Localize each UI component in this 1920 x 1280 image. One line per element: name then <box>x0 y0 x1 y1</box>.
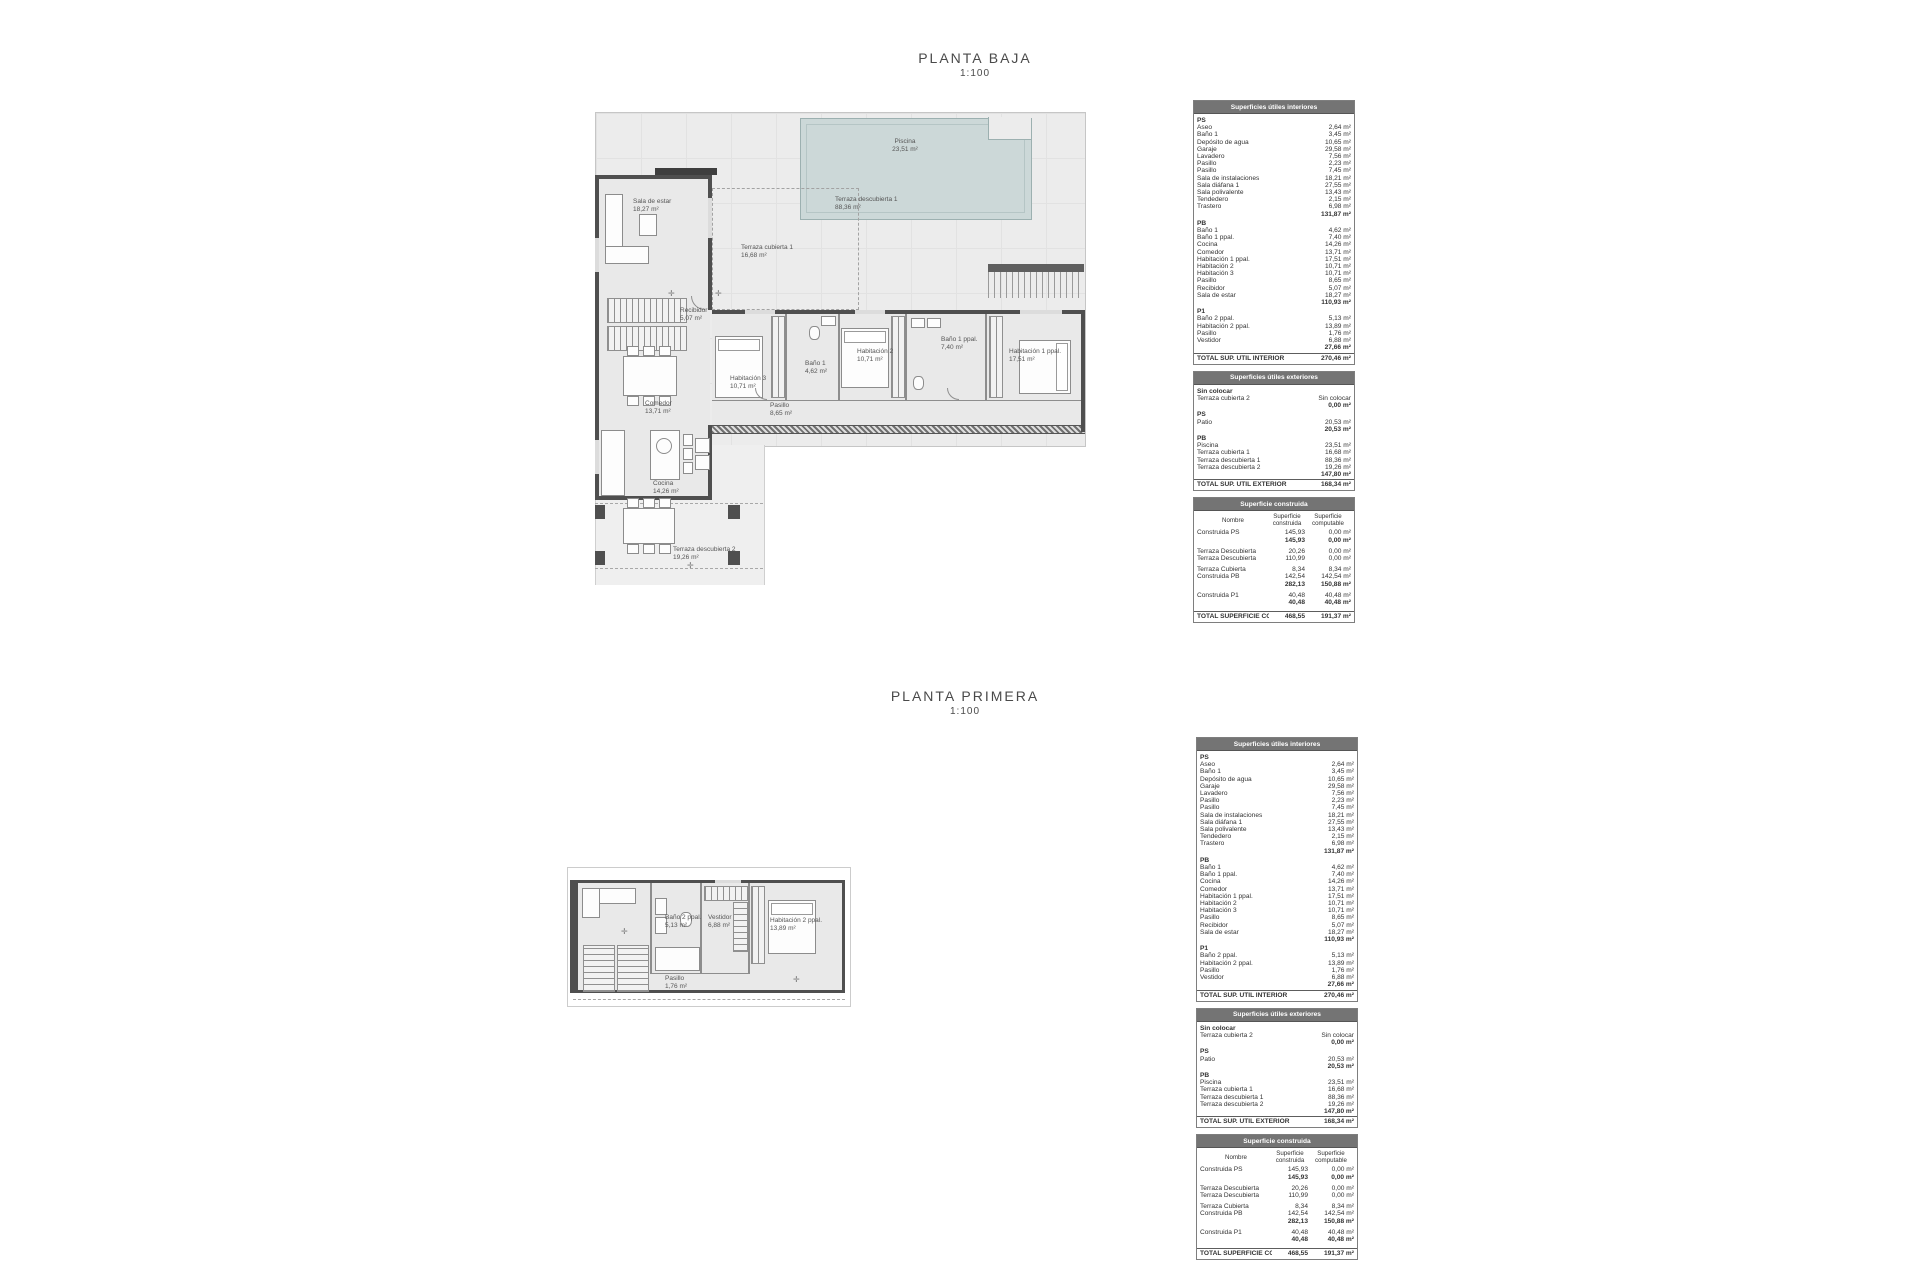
table-row: Construida P140,4840,48 m² <box>1194 592 1354 599</box>
row-value: 7,56 m² <box>1310 790 1354 797</box>
stairs <box>617 945 649 992</box>
row-value <box>1307 220 1351 227</box>
table-row: Construida P140,4840,48 m² <box>1197 1229 1357 1236</box>
room-area: 13,89 m² <box>770 925 796 932</box>
overhang-dashed-line <box>573 999 845 1000</box>
shower <box>655 947 700 971</box>
table-row: NombreSuperficie construidaSuperficie co… <box>1194 513 1354 527</box>
level-marker-icon: ✛ <box>793 976 800 984</box>
table-row: Sala de estar18,27 m² <box>1197 929 1357 936</box>
row-label: Terraza descubierta 2 <box>1200 1101 1310 1108</box>
row-value: 20,26 <box>1272 1185 1308 1192</box>
area-tables-planta-baja: Superficies útiles interioresPSAseo2,64 … <box>1193 100 1355 629</box>
table-row: Cocina14,26 m² <box>1194 241 1354 248</box>
table-row: NombreSuperficie construidaSuperficie co… <box>1197 1150 1357 1164</box>
room-label: Baño 14,62 m² <box>805 360 827 375</box>
row-value: 131,87 m² <box>1310 848 1354 855</box>
row-value: 18,27 m² <box>1307 292 1351 299</box>
row-label: Piscina <box>1200 1079 1310 1086</box>
wardrobe <box>771 316 785 398</box>
window <box>1020 310 1062 314</box>
row-value: 20,53 m² <box>1307 419 1351 426</box>
table-row: Terraza Descubierta110,990,00 m² <box>1194 555 1354 562</box>
table-row: 110,93 m² <box>1197 936 1357 943</box>
row-value: 40,48 <box>1272 1229 1308 1236</box>
table-row: 40,4840,48 m² <box>1197 1236 1357 1243</box>
level-marker-icon: ✛ <box>668 290 675 298</box>
partition <box>785 314 787 400</box>
table-row: Sala polivalente13,43 m² <box>1194 189 1354 196</box>
table-row: 27,66 m² <box>1197 981 1357 988</box>
row-label <box>1197 211 1307 218</box>
row-label: Trastero <box>1197 203 1307 210</box>
floor-plan-planta-primera: ✛ ✛ Baño 2 ppal.5,13 m² Vestidor6,88 m² … <box>565 862 865 1012</box>
row-value: 468,55 <box>1269 613 1305 620</box>
row-label: PS <box>1197 117 1307 124</box>
row-label: Trastero <box>1200 840 1310 847</box>
table-row: Vestidor6,88 m² <box>1194 337 1354 344</box>
row-label: Terraza Descubierta <box>1197 555 1269 562</box>
row-label <box>1197 426 1307 433</box>
table-row: 0,00 m² <box>1197 1039 1357 1046</box>
row-value: 0,00 m² <box>1308 1192 1354 1199</box>
table-body: PSAseo2,64 m²Baño 13,45 m²Depósito de ag… <box>1194 114 1354 364</box>
wall <box>655 168 717 175</box>
table-row: Construida PB142,54142,54 m² <box>1197 1210 1357 1217</box>
wall <box>573 880 845 883</box>
row-label: Sin colocar <box>1200 1025 1310 1032</box>
row-value <box>1307 308 1351 315</box>
room-area: 13,71 m² <box>645 408 671 415</box>
room-label: Pasillo1,76 m² <box>665 975 687 990</box>
row-label: Habitación 1 ppal. <box>1197 256 1307 263</box>
room-label: Habitación 210,71 m² <box>857 348 893 363</box>
room-area: 8,65 m² <box>770 410 792 417</box>
stool <box>683 434 693 446</box>
row-value: 2,23 m² <box>1310 797 1354 804</box>
row-value: 19,26 m² <box>1307 464 1351 471</box>
room-name: Habitación 1 ppal. <box>1009 348 1061 355</box>
table-row: Baño 2 ppal.5,13 m² <box>1197 952 1357 959</box>
row-label: Pasillo <box>1197 330 1307 337</box>
table-header: Superficie construida <box>1194 498 1354 511</box>
row-value: 7,40 m² <box>1307 234 1351 241</box>
row-value: 7,45 m² <box>1310 804 1354 811</box>
row-value: 0,00 m² <box>1308 1166 1354 1173</box>
room-area: 7,40 m² <box>941 344 963 351</box>
chair <box>627 544 639 554</box>
floor-plan-planta-baja: ✛ ✛ ✛ Piscina23,51 m² Terraza descubiert… <box>595 88 1087 588</box>
pergola-slats <box>988 272 1084 298</box>
row-value: Sin colocar <box>1310 1032 1354 1039</box>
row-label: Baño 1 <box>1197 227 1307 234</box>
window <box>745 310 775 314</box>
wall-hatched <box>712 425 1085 434</box>
table-row: Garaje29,58 m² <box>1194 146 1354 153</box>
room-area: 88,36 m² <box>835 204 861 211</box>
row-value: 17,51 m² <box>1310 893 1354 900</box>
row-value: 18,21 m² <box>1307 175 1351 182</box>
row-label: Sala polivalente <box>1197 189 1307 196</box>
table-row: 110,93 m² <box>1194 299 1354 306</box>
row-value: Superficie construida <box>1272 1150 1308 1164</box>
table-row: Habitación 2 ppal.13,89 m² <box>1194 323 1354 330</box>
row-label <box>1200 1218 1272 1225</box>
table-row: P1 <box>1194 308 1354 315</box>
row-value: 8,34 <box>1272 1203 1308 1210</box>
room-area: 5,07 m² <box>680 315 702 322</box>
row-value: 13,43 m² <box>1310 826 1354 833</box>
row-value <box>1307 411 1351 418</box>
row-label: Nombre <box>1197 517 1269 524</box>
room-label: Terraza cubierta 116,68 m² <box>741 244 793 259</box>
row-label: Construida PB <box>1200 1210 1272 1217</box>
room-label: Habitación 2 ppal.13,89 m² <box>770 917 822 932</box>
row-value: 142,54 m² <box>1308 1210 1354 1217</box>
room-area: 10,71 m² <box>857 356 883 363</box>
sofa <box>605 246 649 264</box>
row-value: 0,00 m² <box>1307 402 1351 409</box>
scale-label: 1:100 <box>845 68 1105 79</box>
table-row: Cocina14,26 m² <box>1197 878 1357 885</box>
table-gap <box>1197 1243 1357 1247</box>
table-row: Sala de instalaciones18,21 m² <box>1197 812 1357 819</box>
table-row: Terraza cubierta 116,68 m² <box>1197 1086 1357 1093</box>
table-row: P1 <box>1197 945 1357 952</box>
table-row: PS <box>1197 754 1357 761</box>
page-title: PLANTA PRIMERA <box>835 688 1095 704</box>
row-value: 20,26 <box>1269 548 1305 555</box>
row-value: 147,80 m² <box>1310 1108 1354 1115</box>
table-row: Baño 13,45 m² <box>1194 131 1354 138</box>
room-label: Sala de estar18,27 m² <box>633 198 671 213</box>
row-label: Aseo <box>1197 124 1307 131</box>
table-header: Superficies útiles interiores <box>1194 101 1354 114</box>
row-label: Terraza Descubierta <box>1200 1185 1272 1192</box>
row-value: 6,88 m² <box>1307 337 1351 344</box>
row-value: 2,23 m² <box>1307 160 1351 167</box>
row-value: 131,87 m² <box>1307 211 1351 218</box>
row-value: 2,15 m² <box>1307 196 1351 203</box>
row-label: Terraza Cubierta <box>1197 566 1269 573</box>
row-value: 1,76 m² <box>1307 330 1351 337</box>
row-value <box>1310 945 1354 952</box>
table-row: Pasillo2,23 m² <box>1194 160 1354 167</box>
table-row: Trastero6,98 m² <box>1197 840 1357 847</box>
row-label: Lavadero <box>1200 790 1310 797</box>
table-row: Habitación 210,71 m² <box>1197 900 1357 907</box>
row-value: 88,36 m² <box>1310 1094 1354 1101</box>
stool <box>683 462 693 474</box>
chair <box>643 346 655 356</box>
room-label: Vestidor6,88 m² <box>708 914 732 929</box>
row-value: 150,88 m² <box>1305 581 1351 588</box>
row-value: 147,80 m² <box>1307 471 1351 478</box>
room-label: Baño 1 ppal.7,40 m² <box>941 336 978 351</box>
row-value: Superficie computable <box>1305 513 1351 527</box>
row-value: 17,51 m² <box>1307 256 1351 263</box>
partition <box>650 973 750 974</box>
row-label: PB <box>1197 435 1307 442</box>
row-label: Sala de instalaciones <box>1197 175 1307 182</box>
room-name: Terraza descubierta 1 <box>835 196 898 203</box>
row-value: 0,00 m² <box>1308 1185 1354 1192</box>
table-row: Habitación 1 ppal.17,51 m² <box>1197 893 1357 900</box>
row-value: 2,15 m² <box>1310 833 1354 840</box>
row-value: 145,93 <box>1272 1166 1308 1173</box>
pool-step <box>988 117 1031 140</box>
row-value: 0,00 m² <box>1305 537 1351 544</box>
level-marker-icon: ✛ <box>621 928 628 936</box>
table-row: PB <box>1194 220 1354 227</box>
row-label: Cocina <box>1197 241 1307 248</box>
row-value: 14,26 m² <box>1307 241 1351 248</box>
row-value: 2,64 m² <box>1310 761 1354 768</box>
table-row: 147,80 m² <box>1197 1108 1357 1115</box>
row-label: Sala de estar <box>1197 292 1307 299</box>
room-name: Baño 1 ppal. <box>941 336 978 343</box>
room-name: Recibidor <box>680 307 707 314</box>
chair <box>659 498 671 508</box>
room-label: Cocina14,26 m² <box>653 480 679 495</box>
row-value: 6,88 m² <box>1310 974 1354 981</box>
kitchen-counter <box>601 430 625 496</box>
table-row: PB <box>1197 1072 1357 1079</box>
row-label <box>1197 537 1269 544</box>
table-row: Pasillo8,65 m² <box>1197 914 1357 921</box>
row-label <box>1197 402 1307 409</box>
row-value: 29,58 m² <box>1307 146 1351 153</box>
table-row: 131,87 m² <box>1197 848 1357 855</box>
table-row: Sala polivalente13,43 m² <box>1197 826 1357 833</box>
table-body: Sin colocarTerraza cubierta 2Sin colocar… <box>1197 1022 1357 1128</box>
sink <box>927 318 941 328</box>
chair <box>643 498 655 508</box>
interior-areas-table: Superficies útiles interioresPSAseo2,64 … <box>1196 737 1358 1002</box>
row-value: 20,53 m² <box>1310 1063 1354 1070</box>
room-label: Terraza descubierta 188,36 m² <box>835 196 898 211</box>
table-row: 131,87 m² <box>1194 211 1354 218</box>
row-value: 40,48 m² <box>1308 1229 1354 1236</box>
row-label: Patio <box>1197 419 1307 426</box>
table-row: Terraza Descubierta110,990,00 m² <box>1197 1192 1357 1199</box>
row-value: 110,99 <box>1269 555 1305 562</box>
table-row: Lavadero7,56 m² <box>1197 790 1357 797</box>
room-name: Terraza descubierta 2 <box>673 546 736 553</box>
row-value: 8,65 m² <box>1307 277 1351 284</box>
built-areas-table: Superficie construidaNombreSuperficie co… <box>1196 1134 1358 1260</box>
row-value: 16,68 m² <box>1307 449 1351 456</box>
window <box>855 310 885 314</box>
room-area: 5,13 m² <box>665 922 687 929</box>
table-row: Comedor13,71 m² <box>1197 886 1357 893</box>
row-label: Vestidor <box>1200 974 1310 981</box>
row-label: Sin colocar <box>1197 388 1307 395</box>
row-value <box>1310 1072 1354 1079</box>
room-label: Habitación 1 ppal.17,51 m² <box>1009 348 1061 363</box>
table-row: 20,53 m² <box>1194 426 1354 433</box>
row-label: Aseo <box>1200 761 1310 768</box>
row-value: 10,71 m² <box>1307 263 1351 270</box>
wall <box>1081 310 1085 432</box>
row-label: Habitación 1 ppal. <box>1200 893 1310 900</box>
row-label: PB <box>1200 857 1310 864</box>
row-label: Terraza descubierta 2 <box>1197 464 1307 471</box>
area-tables-planta-primera: Superficies útiles interioresPSAseo2,64 … <box>1196 737 1358 1266</box>
row-value: 4,62 m² <box>1310 864 1354 871</box>
table-row: Tendedero2,15 m² <box>1197 833 1357 840</box>
row-value: 3,45 m² <box>1307 131 1351 138</box>
pergola-beam <box>988 264 1084 272</box>
row-value: 20,53 m² <box>1310 1056 1354 1063</box>
row-label: Garaje <box>1200 783 1310 790</box>
table-row: Habitación 1 ppal.17,51 m² <box>1194 256 1354 263</box>
row-label: Habitación 2 ppal. <box>1200 960 1310 967</box>
row-label <box>1197 599 1269 606</box>
room-area: 4,62 m² <box>805 368 827 375</box>
row-value: 0,00 m² <box>1305 548 1351 555</box>
row-label: Comedor <box>1197 249 1307 256</box>
window <box>708 198 712 238</box>
row-label: PB <box>1200 1072 1310 1079</box>
row-value: 282,13 <box>1272 1218 1308 1225</box>
table-body: Sin colocarTerraza cubierta 2Sin colocar… <box>1194 385 1354 491</box>
scale-label: 1:100 <box>835 706 1095 717</box>
table-row: Habitación 310,71 m² <box>1194 270 1354 277</box>
row-label <box>1200 936 1310 943</box>
table-row: Terraza Cubierta8,348,34 m² <box>1197 1203 1357 1210</box>
row-value: 6,98 m² <box>1310 840 1354 847</box>
table-row: Terraza cubierta 116,68 m² <box>1194 449 1354 456</box>
row-label: Habitación 3 <box>1197 270 1307 277</box>
table-row: Sin colocar <box>1194 388 1354 395</box>
table-row: Baño 1 ppal.7,40 m² <box>1197 871 1357 878</box>
row-label: Terraza cubierta 2 <box>1197 395 1307 402</box>
table-row: Recibidor5,07 m² <box>1194 285 1354 292</box>
row-value: 145,93 <box>1269 529 1305 536</box>
row-label: Sala diáfana 1 <box>1200 819 1310 826</box>
built-areas-table: Superficie construidaNombreSuperficie co… <box>1193 497 1355 623</box>
table-body: PSAseo2,64 m²Baño 13,45 m²Depósito de ag… <box>1197 751 1357 1001</box>
partition <box>905 314 907 400</box>
table-row: Comedor13,71 m² <box>1194 249 1354 256</box>
row-value: 5,13 m² <box>1307 315 1351 322</box>
row-label: Piscina <box>1197 442 1307 449</box>
room-label: Pasillo8,65 m² <box>770 402 792 417</box>
terrace-dashed-line <box>595 568 763 569</box>
wardrobe <box>989 316 1003 398</box>
table-row: Aseo2,64 m² <box>1197 761 1357 768</box>
table-row: Pasillo1,76 m² <box>1197 967 1357 974</box>
row-value <box>1307 435 1351 442</box>
stool <box>683 448 693 460</box>
room-name: Cocina <box>653 480 673 487</box>
row-label: Baño 2 ppal. <box>1200 952 1310 959</box>
row-value: 5,07 m² <box>1310 922 1354 929</box>
row-label: Construida P1 <box>1200 1229 1272 1236</box>
row-value: 1,76 m² <box>1310 967 1354 974</box>
row-label: Baño 1 ppal. <box>1197 234 1307 241</box>
table-header: Superficie construida <box>1197 1135 1357 1148</box>
table-row: Pasillo7,45 m² <box>1194 167 1354 174</box>
row-label: Garaje <box>1197 146 1307 153</box>
row-label: Recibidor <box>1200 922 1310 929</box>
sink <box>911 318 925 328</box>
chair <box>627 498 639 508</box>
row-value: 150,88 m² <box>1308 1218 1354 1225</box>
table-row: Sala de estar18,27 m² <box>1194 292 1354 299</box>
table-row: PB <box>1197 857 1357 864</box>
row-value: 4,62 m² <box>1307 227 1351 234</box>
sheet-title-planta-primera: PLANTA PRIMERA 1:100 <box>835 688 1095 717</box>
room-label: Comedor13,71 m² <box>645 400 672 415</box>
dining-table <box>623 356 677 396</box>
row-label: Terraza cubierta 2 <box>1200 1032 1310 1039</box>
row-label: Terraza descubierta 1 <box>1200 1094 1310 1101</box>
toilet <box>913 376 924 390</box>
table-row: Sala diáfana 127,55 m² <box>1194 182 1354 189</box>
row-value: 40,48 <box>1269 592 1305 599</box>
row-value: 40,48 <box>1272 1236 1308 1243</box>
row-label <box>1197 299 1307 306</box>
table-row: 0,00 m² <box>1194 402 1354 409</box>
level-marker-icon: ✛ <box>715 290 722 298</box>
table-row: Patio20,53 m² <box>1197 1056 1357 1063</box>
row-label: Sala diáfana 1 <box>1197 182 1307 189</box>
row-label: Depósito de agua <box>1200 776 1310 783</box>
row-label: TOTAL SUP. ÚTIL INTERIOR <box>1197 355 1307 362</box>
row-value <box>1310 754 1354 761</box>
row-value: 2,64 m² <box>1307 124 1351 131</box>
row-label: Patio <box>1200 1056 1310 1063</box>
row-label: Baño 1 ppal. <box>1200 871 1310 878</box>
row-value: 142,54 <box>1272 1210 1308 1217</box>
table-row: Construida PB142,54142,54 m² <box>1194 573 1354 580</box>
row-value: 23,51 m² <box>1307 442 1351 449</box>
table-row: Baño 14,62 m² <box>1194 227 1354 234</box>
row-value: 8,34 <box>1269 566 1305 573</box>
room-name: Baño 1 <box>805 360 826 367</box>
row-label: Pasillo <box>1200 797 1310 804</box>
table-row: TOTAL SUPERFICIE CONSTRUIDA:468,55191,37… <box>1194 611 1354 620</box>
row-value: Superficie computable <box>1308 1150 1354 1164</box>
table-row: TOTAL SUP. ÚTIL INTERIOR270,46 m² <box>1197 990 1357 999</box>
row-value: 40,48 m² <box>1305 592 1351 599</box>
row-value: 168,34 m² <box>1310 1118 1354 1125</box>
table-row: Sin colocar <box>1197 1025 1357 1032</box>
table-row: Terraza descubierta 188,36 m² <box>1197 1094 1357 1101</box>
chair <box>627 396 639 406</box>
row-value: 13,71 m² <box>1307 249 1351 256</box>
row-value: 13,43 m² <box>1307 189 1351 196</box>
wall <box>842 880 845 993</box>
row-value: 168,34 m² <box>1307 481 1351 488</box>
row-label: Terraza descubierta 1 <box>1197 457 1307 464</box>
row-value: 7,40 m² <box>1310 871 1354 878</box>
stairs <box>607 298 687 323</box>
row-label: Construida PB <box>1197 573 1269 580</box>
row-value: Superficie construida <box>1269 513 1305 527</box>
row-label <box>1197 581 1269 588</box>
row-label: Pasillo <box>1197 167 1307 174</box>
row-value <box>1310 857 1354 864</box>
post <box>595 551 605 565</box>
room-label: Baño 2 ppal.5,13 m² <box>665 914 702 929</box>
table-row: 147,80 m² <box>1194 471 1354 478</box>
row-label: Terraza cubierta 1 <box>1200 1086 1310 1093</box>
row-value: 6,98 m² <box>1307 203 1351 210</box>
room-name: Piscina <box>895 138 916 145</box>
